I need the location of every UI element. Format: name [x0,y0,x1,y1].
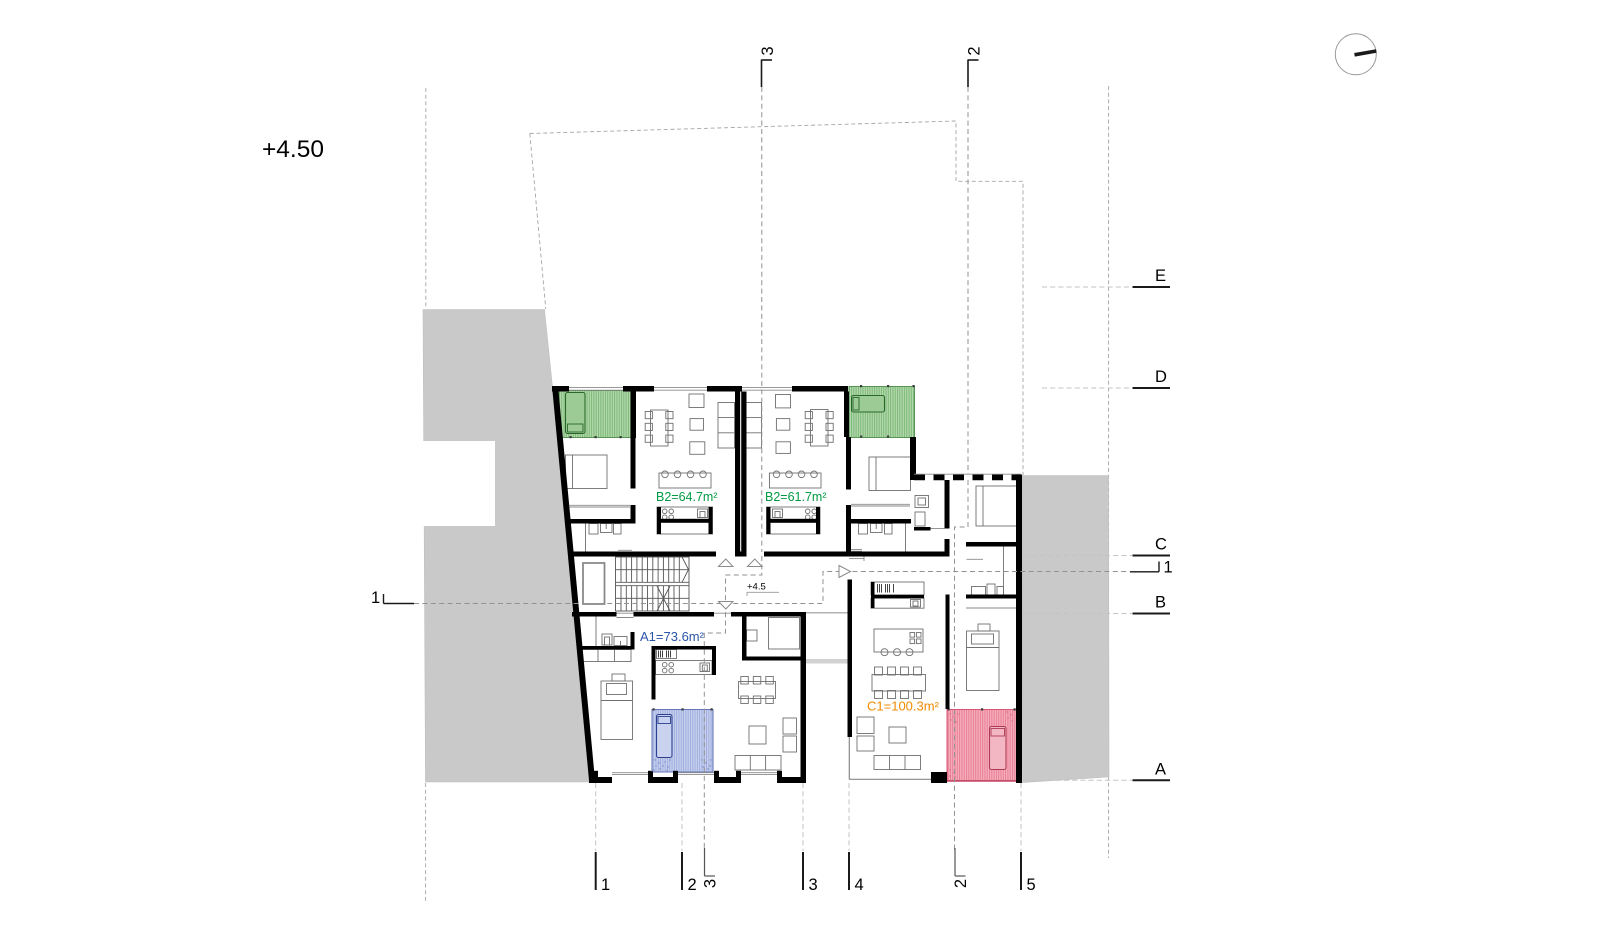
svg-text:D: D [1155,368,1167,386]
svg-text:3: 3 [702,879,720,888]
svg-text:1: 1 [601,876,610,894]
svg-text:A1=73.6m²: A1=73.6m² [640,629,705,644]
svg-text:3: 3 [759,46,777,55]
svg-text:A: A [1155,761,1166,779]
svg-text:2: 2 [966,46,984,55]
svg-text:+4.50: +4.50 [262,136,324,163]
svg-text:B: B [1155,594,1166,612]
svg-text:B2=64.7m²: B2=64.7m² [656,490,718,504]
svg-text:C1=100.3m²: C1=100.3m² [867,699,940,714]
svg-text:B2=61.7m²: B2=61.7m² [765,490,827,504]
svg-text:1: 1 [1164,559,1173,577]
svg-text:5: 5 [1027,876,1036,894]
svg-text:4: 4 [855,876,864,894]
svg-text:E: E [1155,267,1166,285]
svg-text:3: 3 [809,876,818,894]
svg-text:2: 2 [952,879,970,888]
svg-text:2: 2 [688,876,697,894]
svg-text:+4.5: +4.5 [747,582,766,593]
svg-text:C: C [1155,536,1167,554]
svg-text:1: 1 [371,589,380,607]
